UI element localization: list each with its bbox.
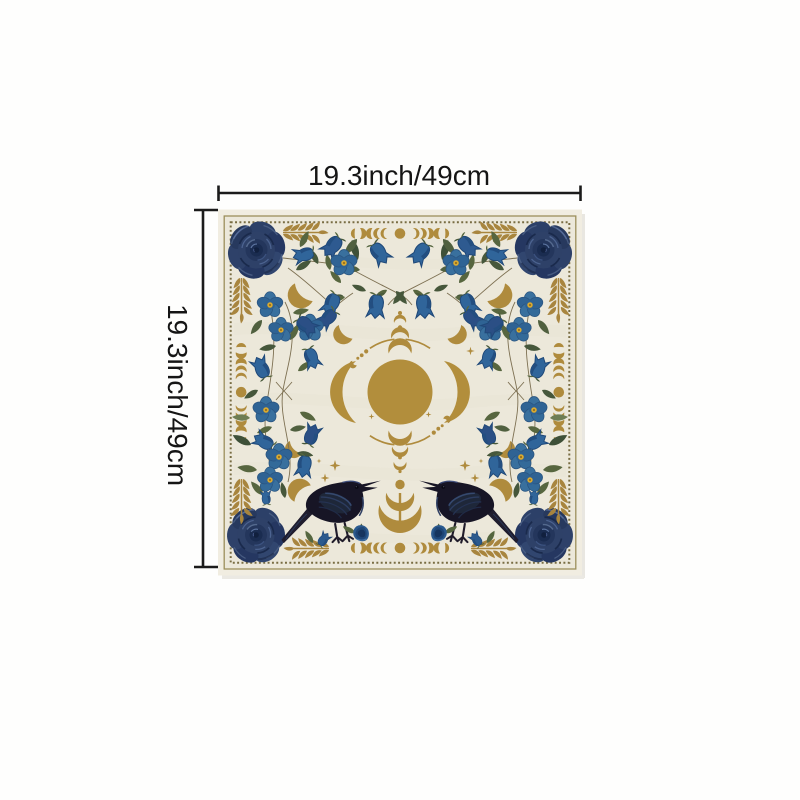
svg-text:19.3inch/49cm: 19.3inch/49cm bbox=[162, 304, 193, 486]
svg-text:19.3inch/49cm: 19.3inch/49cm bbox=[308, 160, 490, 191]
